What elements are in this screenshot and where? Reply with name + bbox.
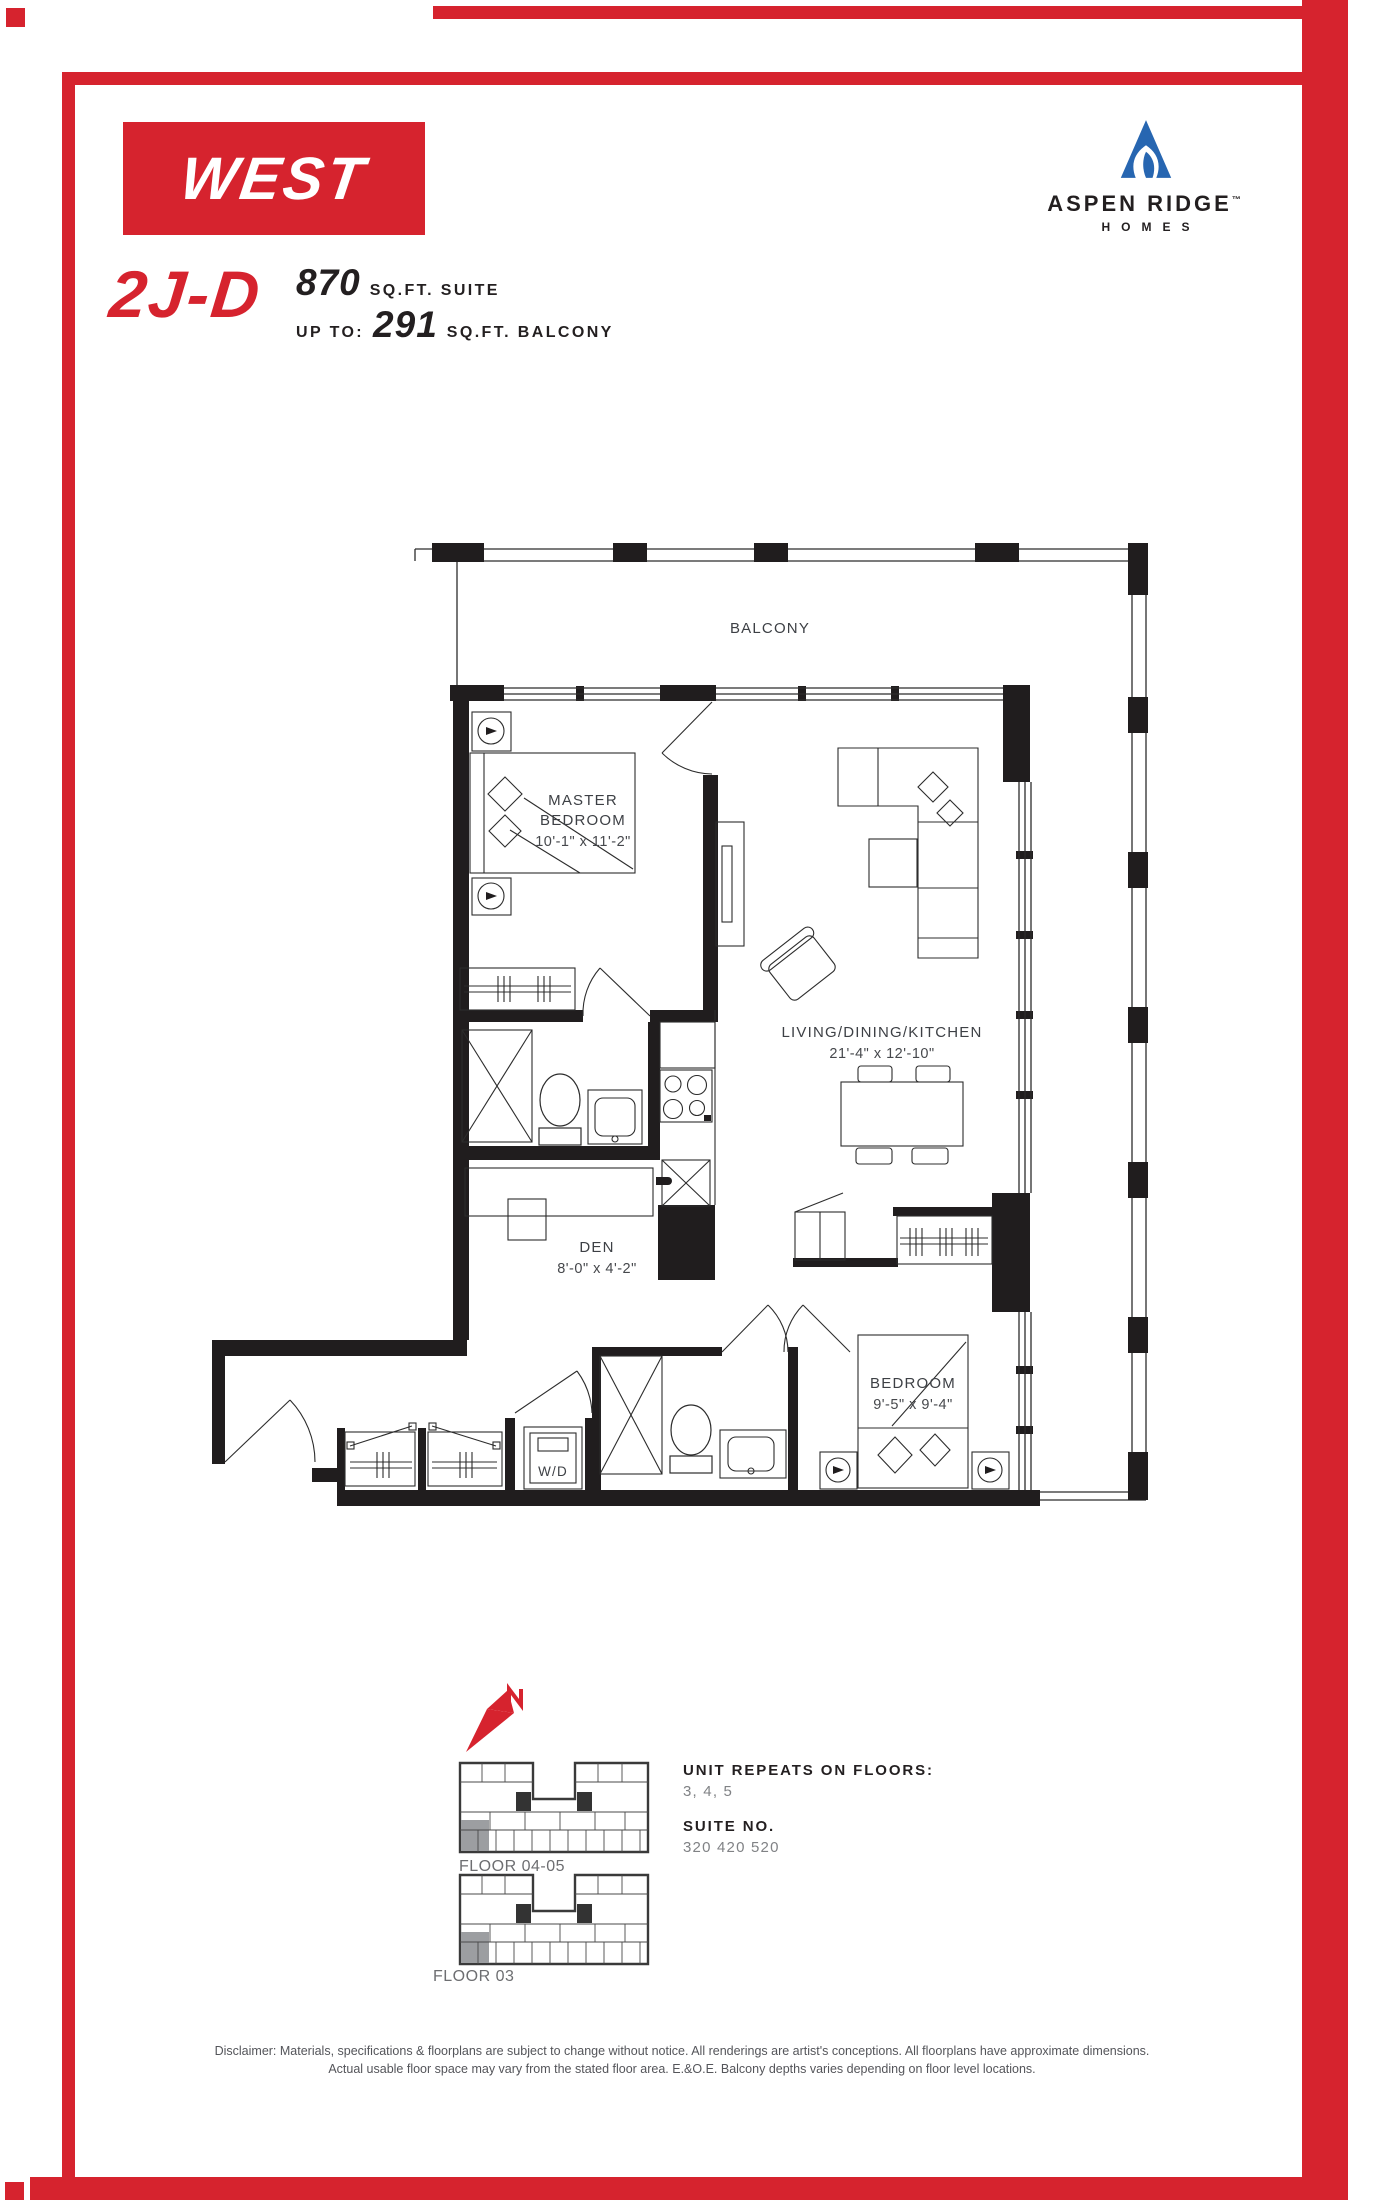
balcony-label: BALCONY [730,620,810,637]
crop-mark-bottom-left [5,2182,24,2200]
washer-dryer [524,1427,582,1489]
suite-area-row: 870 SQ.FT. SUITE [296,262,614,304]
bedroom-label: BEDROOM [870,1375,956,1392]
unit-code: 2J-D [106,256,265,332]
suite-area-unit: SQ.FT. SUITE [370,282,500,300]
den-label: DEN [579,1239,614,1256]
unit-repeats-value: 3, 4, 5 [683,1783,733,1800]
toilet [671,1405,711,1455]
bedroom-closet [897,1216,992,1264]
desk-chair [508,1199,546,1240]
frame-bottom-band [30,2177,1348,2200]
coffee-table [869,839,917,887]
balcony-prefix: UP TO: [296,324,364,342]
balcony-area-value: 291 [373,304,438,346]
west-logo: WEST [123,122,425,235]
trademark-mark: ™ [1232,195,1244,205]
suite-no-label: SUITE NO. [683,1818,775,1835]
bedroom-dims: 9'-5" x 9'-4" [873,1397,953,1413]
svg-text:BEDROOM: BEDROOM [540,812,626,829]
keyplan-floor-04-05 [460,1763,648,1852]
aspen-ridge-mountain-icon [1118,116,1174,182]
kitchen [656,1010,715,1206]
living-dining-kitchen-dims: 21'-4" x 12'-10" [829,1046,934,1062]
suite-area-value: 870 [296,262,361,304]
balcony-area-unit: SQ.FT. BALCONY [447,324,614,342]
ceiling-light-icon [985,1466,996,1474]
closet [460,968,575,1010]
frame-right-band [1302,0,1348,2200]
page: WEST ASPEN RIDGE™ HOMES 2J-D 870 SQ.FT. … [0,0,1375,2200]
master-bedroom-dims: 10'-1" x 11'-2" [535,834,631,850]
tv-console [716,822,744,946]
west-logo-text: WEST [176,144,371,213]
crop-mark-top-left [6,8,25,27]
aspen-ridge-logo: ASPEN RIDGE™ HOMES [1038,116,1253,234]
den [465,1168,653,1240]
sofa [838,748,978,958]
unit-repeats-label: UNIT REPEATS ON FLOORS: [683,1762,934,1779]
unit-specs: 870 SQ.FT. SUITE UP TO: 291 SQ.FT. BALCO… [296,262,614,346]
key-plans: FLOOR 04-05 FLOOR 03 [420,1680,700,2000]
bathroom-ensuite [462,1030,642,1145]
bathroom-main [600,1356,786,1478]
suite-no-value: 320 420 520 [683,1839,780,1856]
frame-top-bar [433,6,1348,19]
disclaimer-line-1: Disclaimer: Materials, specifications & … [62,2042,1302,2060]
master-bedroom [460,712,635,1010]
den-dims: 8'-0" x 4'-2" [557,1261,637,1277]
toilet [540,1074,580,1126]
hanger-icons [498,976,550,1002]
master-bedroom-label: MASTER [548,792,618,809]
counter [660,1022,715,1068]
keyplan-label-floor-03: FLOOR 03 [433,1968,514,1985]
ceiling-light-icon [486,892,497,900]
desk [465,1168,653,1216]
floorplan-drawing: BALCONY MASTER BEDROOM 10'-1" x 11'-2" L… [200,535,1160,1515]
wd-label: W/D [538,1464,568,1479]
living-dining [716,748,978,1260]
ceiling-light-icon [833,1466,844,1474]
disclaimer-line-2: Actual usable floor space may vary from … [62,2060,1302,2078]
frame-left-line [62,72,75,2177]
balcony-area-row: UP TO: 291 SQ.FT. BALCONY [296,304,614,346]
keyplan-label-floor-04-05: FLOOR 04-05 [459,1858,565,1875]
frame-top-line [62,72,1302,85]
entry-closets [345,1423,582,1489]
ceiling-light-icon [486,727,497,735]
dining-table [841,1082,963,1146]
aspen-ridge-wordmark: ASPEN RIDGE™ [1038,191,1253,217]
disclaimer: Disclaimer: Materials, specifications & … [62,2042,1302,2078]
living-dining-kitchen-label: LIVING/DINING/KITCHEN [781,1024,982,1041]
armchair [758,925,840,1005]
aspen-ridge-homes-text: HOMES [1049,220,1253,234]
keyplan-floor-03 [460,1875,648,1964]
hanger-icons [910,1228,978,1256]
north-arrow-icon [466,1689,521,1752]
